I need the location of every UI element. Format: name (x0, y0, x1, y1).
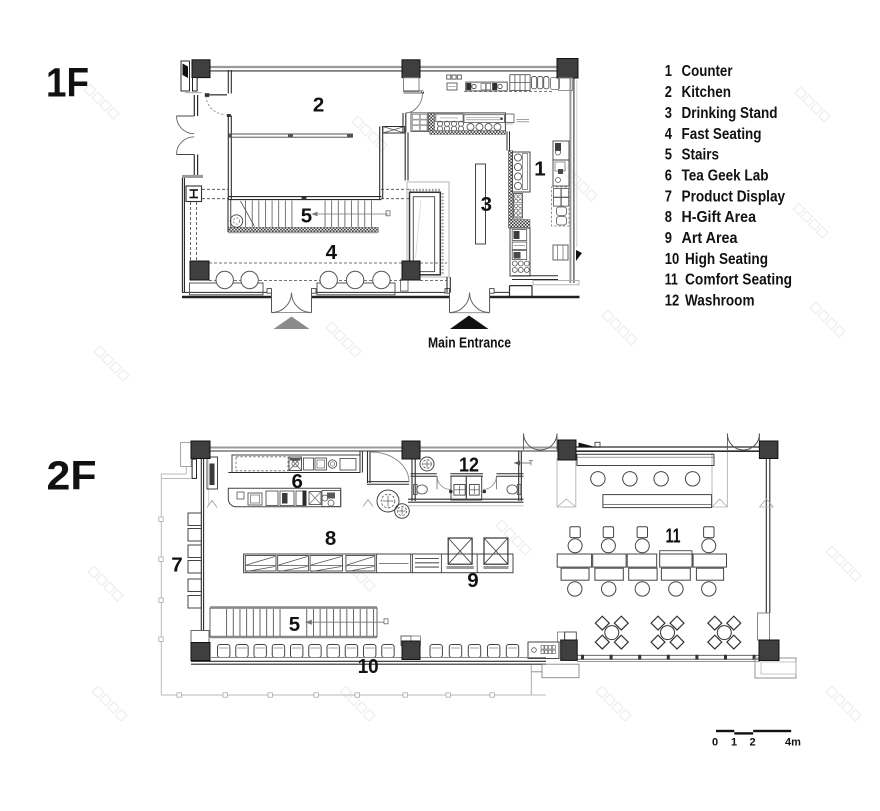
svg-text:Product Display: Product Display (682, 188, 786, 205)
svg-text:12: 12 (459, 454, 479, 477)
svg-text:11: 11 (666, 525, 681, 548)
svg-text:9: 9 (665, 230, 673, 247)
svg-text:Counter: Counter (682, 63, 733, 80)
svg-text:8: 8 (665, 209, 673, 226)
svg-text:5: 5 (289, 613, 300, 636)
svg-text:6: 6 (665, 167, 673, 184)
svg-text:5: 5 (301, 204, 312, 227)
svg-text:Washroom: Washroom (685, 293, 755, 310)
svg-text:12: 12 (665, 293, 680, 310)
svg-text:Main Entrance: Main Entrance (428, 335, 511, 352)
svg-text:0: 0 (712, 737, 718, 749)
svg-text:3: 3 (481, 193, 492, 216)
svg-text:3: 3 (665, 105, 673, 122)
svg-text:7: 7 (665, 188, 672, 205)
svg-text:2: 2 (665, 84, 672, 101)
svg-text:6: 6 (291, 470, 302, 493)
svg-text:Comfort Seating: Comfort Seating (685, 272, 792, 289)
svg-text:Kitchen: Kitchen (682, 84, 732, 101)
svg-text:10: 10 (665, 251, 680, 268)
svg-text:9: 9 (467, 569, 478, 592)
svg-text:High Seating: High Seating (685, 251, 768, 268)
svg-text:10: 10 (358, 655, 379, 678)
svg-text:11: 11 (665, 272, 678, 289)
svg-text:4: 4 (665, 126, 673, 143)
svg-text:Drinking Stand: Drinking Stand (682, 105, 778, 122)
svg-text:2: 2 (313, 94, 324, 117)
svg-text:Fast Seating: Fast Seating (682, 126, 762, 143)
svg-text:4m: 4m (785, 737, 801, 749)
svg-text:Art Area: Art Area (682, 230, 738, 247)
svg-text:4: 4 (326, 241, 338, 264)
svg-text:1: 1 (731, 737, 737, 749)
svg-text:1F: 1F (46, 60, 89, 106)
svg-text:1: 1 (534, 158, 545, 181)
svg-text:1: 1 (665, 63, 673, 80)
svg-text:7: 7 (171, 554, 182, 577)
svg-text:5: 5 (665, 147, 673, 164)
svg-text:2F: 2F (47, 453, 97, 499)
svg-text:H-Gift Area: H-Gift Area (682, 209, 757, 226)
svg-text:Stairs: Stairs (682, 147, 720, 164)
svg-text:Tea Geek Lab: Tea Geek Lab (682, 167, 769, 184)
svg-text:2: 2 (749, 737, 755, 749)
svg-text:8: 8 (325, 527, 336, 550)
